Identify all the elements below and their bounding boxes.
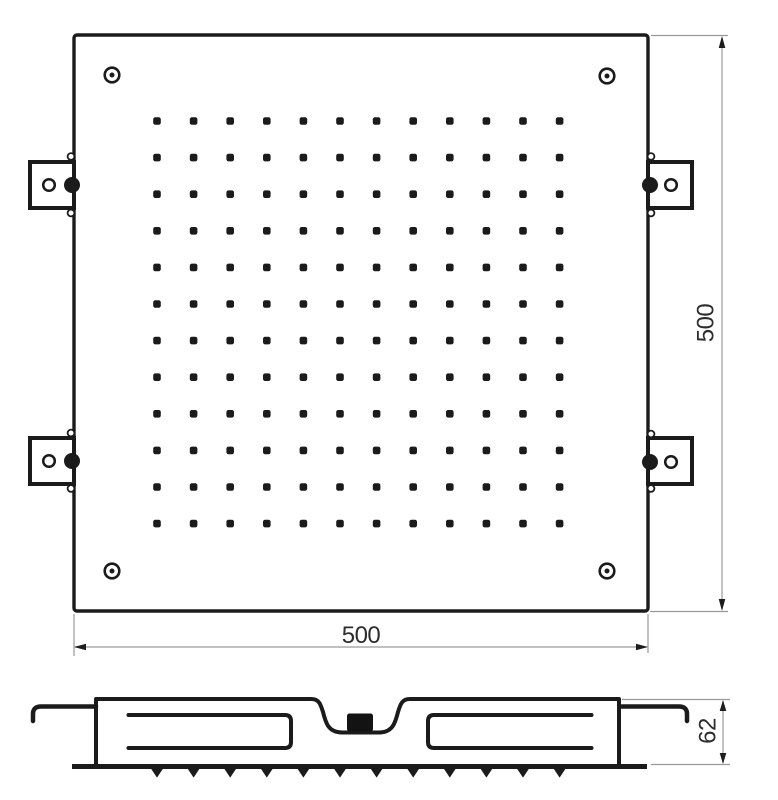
nozzle-dot — [556, 337, 564, 345]
nozzle-dot — [153, 227, 161, 235]
technical-drawing: 500 500 62 — [0, 0, 778, 800]
nozzle-dot — [153, 154, 161, 162]
nozzle-dot — [336, 264, 344, 272]
bracket-bump — [648, 153, 655, 160]
bracket-bump — [68, 485, 75, 492]
nozzle-dot — [336, 300, 344, 308]
nozzle-dot — [336, 447, 344, 455]
nozzle-dot — [263, 154, 271, 162]
nozzle-dot — [300, 300, 308, 308]
nozzle-dot — [519, 520, 527, 528]
nozzle-dot — [336, 227, 344, 235]
nozzle-dot — [336, 337, 344, 345]
nozzle-dot — [373, 154, 381, 162]
nozzle-dot — [373, 227, 381, 235]
nozzle-dot — [300, 410, 308, 418]
dimension-label-width: 500 — [342, 622, 381, 649]
nozzle-dot — [409, 373, 417, 381]
nozzle-dot — [300, 117, 308, 125]
bracket-bump — [648, 485, 655, 492]
nozzle-dot — [263, 410, 271, 418]
nozzle-dot — [519, 447, 527, 455]
nozzle-dot — [446, 227, 454, 235]
nozzle-dot — [373, 410, 381, 418]
nozzle-dot — [153, 300, 161, 308]
nozzle-dot — [336, 410, 344, 418]
nozzle-dot — [336, 154, 344, 162]
nozzle-dot — [556, 117, 564, 125]
dimension-label-height: 500 — [693, 304, 720, 343]
nozzle-dot — [226, 337, 234, 345]
nozzle-dot — [409, 190, 417, 198]
nozzle-dot — [300, 447, 308, 455]
corner-screw — [600, 564, 615, 579]
nozzle-tick — [480, 769, 492, 778]
nozzle-tick — [188, 769, 200, 778]
nozzle-dot — [190, 227, 198, 235]
nozzle-dot — [373, 373, 381, 381]
housing-body-outline — [96, 699, 619, 767]
nozzle-dot — [409, 264, 417, 272]
nozzle-dot — [409, 227, 417, 235]
nozzle-dot — [556, 447, 564, 455]
nozzle-dot — [519, 190, 527, 198]
nozzle-dot — [226, 264, 234, 272]
nozzle-dot — [556, 410, 564, 418]
nozzle-dot — [483, 410, 491, 418]
nozzle-dot — [446, 154, 454, 162]
nozzle-dot — [483, 520, 491, 528]
nozzle-dot — [446, 264, 454, 272]
nozzle-dot — [153, 264, 161, 272]
nozzle-dot — [153, 447, 161, 455]
nozzle-dot — [263, 483, 271, 491]
nozzle-dot — [300, 190, 308, 198]
mount-hook-right — [622, 707, 687, 722]
nozzle-dot — [556, 190, 564, 198]
nozzle-dot — [446, 300, 454, 308]
nozzle-dot — [190, 264, 198, 272]
nozzle-dot — [336, 373, 344, 381]
nozzle-dot — [153, 117, 161, 125]
nozzle-dot — [373, 447, 381, 455]
nozzle-dot — [446, 117, 454, 125]
nozzle-dot — [300, 483, 308, 491]
nozzle-dot — [190, 520, 198, 528]
corner-screw — [105, 564, 120, 579]
nozzle-dot — [519, 373, 527, 381]
bracket-bump — [68, 430, 75, 437]
nozzle-dot — [190, 190, 198, 198]
nozzle-dot — [483, 264, 491, 272]
nozzle-dot — [556, 483, 564, 491]
nozzle-dot — [409, 483, 417, 491]
corner-screw — [105, 68, 120, 83]
nozzle-dot — [446, 410, 454, 418]
nozzle-dot — [483, 300, 491, 308]
nozzle-dot — [373, 190, 381, 198]
nozzle-dot — [190, 447, 198, 455]
nozzle-dot — [190, 483, 198, 491]
nozzle-dot — [153, 410, 161, 418]
nozzle-dot — [409, 337, 417, 345]
nozzle-dot — [300, 227, 308, 235]
nozzle-dot — [519, 337, 527, 345]
mounting-bracket-bottom-left — [30, 430, 80, 492]
nozzle-dot — [190, 337, 198, 345]
nozzle-dot — [190, 117, 198, 125]
nozzle-dot — [226, 520, 234, 528]
dimension-depth: 62 — [622, 700, 730, 765]
nozzle-dot — [373, 264, 381, 272]
nozzle-dot — [519, 410, 527, 418]
nozzle-dot — [483, 154, 491, 162]
nozzle-dot — [336, 117, 344, 125]
nozzle-dot — [300, 520, 308, 528]
arrowhead-down-icon — [719, 599, 726, 611]
nozzle-dot — [519, 117, 527, 125]
bracket-pin — [642, 177, 658, 193]
bracket-hole — [43, 455, 55, 467]
nozzle-dot — [483, 117, 491, 125]
screw-center — [605, 74, 610, 79]
nozzle-dot — [153, 373, 161, 381]
top-view — [30, 35, 692, 611]
nozzle-dot — [190, 300, 198, 308]
screw-center — [605, 569, 610, 574]
nozzle-dot — [519, 264, 527, 272]
nozzle-dot — [300, 373, 308, 381]
dimension-height: 500 — [650, 36, 728, 612]
nozzle-dot — [519, 154, 527, 162]
bracket-bump — [648, 431, 655, 438]
mounting-bracket-bottom-right — [642, 431, 692, 492]
nozzle-tick — [297, 769, 309, 778]
nozzle-dot — [226, 447, 234, 455]
dimension-width: 500 — [74, 614, 648, 656]
arrowhead-up-icon — [719, 36, 726, 48]
nozzle-dot — [300, 264, 308, 272]
nozzle-tick — [371, 769, 383, 778]
screw-center — [110, 569, 115, 574]
nozzle-tick — [517, 769, 529, 778]
nozzle-dot — [446, 337, 454, 345]
nozzle-dot — [263, 300, 271, 308]
nozzle-dot — [373, 337, 381, 345]
corner-screw — [600, 69, 615, 84]
nozzle-dot — [263, 227, 271, 235]
nozzle-dot — [483, 447, 491, 455]
nozzle-dot — [300, 154, 308, 162]
bracket-hole — [43, 179, 55, 191]
nozzle-tick — [444, 769, 456, 778]
nozzle-tick — [151, 769, 163, 778]
bracket-pin — [64, 453, 80, 469]
nozzle-tick — [224, 769, 236, 778]
nozzle-dot — [556, 227, 564, 235]
bracket-hole — [665, 179, 677, 191]
nozzle-dot — [556, 300, 564, 308]
mounting-bracket-top-right — [642, 153, 692, 216]
mounting-bracket-top-left — [30, 153, 80, 216]
nozzle-dot — [556, 520, 564, 528]
nozzle-dot — [373, 483, 381, 491]
nozzle-dot — [409, 410, 417, 418]
nozzle-dot — [226, 117, 234, 125]
nozzle-tick — [334, 769, 346, 778]
nozzle-dot — [373, 300, 381, 308]
nozzle-dot — [263, 117, 271, 125]
nozzle-dot — [153, 337, 161, 345]
nozzle-dot — [300, 337, 308, 345]
nozzle-dot — [446, 373, 454, 381]
nozzle-dot — [263, 373, 271, 381]
nozzle-dot — [190, 373, 198, 381]
nozzle-dot — [446, 447, 454, 455]
bracket-bump — [68, 153, 75, 160]
nozzle-dot — [153, 520, 161, 528]
arrowhead-up-icon — [720, 700, 727, 711]
nozzle-dot — [263, 190, 271, 198]
nozzle-dot — [409, 117, 417, 125]
nozzle-tick — [407, 769, 419, 778]
inlet-block — [347, 714, 373, 732]
nozzle-dot — [190, 154, 198, 162]
nozzle-dot — [373, 117, 381, 125]
bracket-pin — [642, 454, 658, 470]
nozzle-dot — [226, 300, 234, 308]
nozzle-dot — [483, 483, 491, 491]
nozzle-dot — [446, 190, 454, 198]
nozzle-tick — [554, 769, 566, 778]
nozzle-dot — [263, 264, 271, 272]
bracket-bump — [648, 210, 655, 217]
nozzle-dot — [336, 483, 344, 491]
nozzle-dot — [263, 337, 271, 345]
nozzle-tick — [261, 769, 273, 778]
nozzle-dot — [263, 520, 271, 528]
nozzle-dot — [483, 337, 491, 345]
bracket-bump — [68, 210, 75, 217]
arrowhead-down-icon — [720, 753, 727, 764]
mount-hook-left — [33, 707, 96, 722]
nozzle-dot — [226, 483, 234, 491]
nozzle-dot — [556, 264, 564, 272]
nozzle-dot — [519, 227, 527, 235]
nozzle-dot — [446, 520, 454, 528]
side-section-view — [33, 699, 687, 778]
nozzle-ticks — [151, 769, 566, 778]
nozzle-dot — [409, 300, 417, 308]
nozzle-dot — [226, 410, 234, 418]
nozzle-dot — [519, 300, 527, 308]
nozzle-dot — [409, 447, 417, 455]
bracket-pin — [64, 177, 80, 193]
nozzle-dot — [190, 410, 198, 418]
nozzle-dot — [446, 483, 454, 491]
nozzle-dot — [336, 520, 344, 528]
nozzle-dot — [409, 520, 417, 528]
nozzle-dot — [483, 373, 491, 381]
nozzle-dot — [226, 154, 234, 162]
nozzle-dot — [409, 154, 417, 162]
nozzle-dot — [483, 227, 491, 235]
nozzle-dot — [226, 373, 234, 381]
nozzle-dot — [263, 447, 271, 455]
nozzle-dot — [226, 227, 234, 235]
nozzle-dot — [336, 190, 344, 198]
drawing-page: 500 500 62 — [0, 0, 778, 800]
arrowhead-right-icon — [636, 644, 648, 651]
screw-center — [110, 73, 115, 78]
nozzle-dot — [226, 190, 234, 198]
arrowhead-left-icon — [74, 644, 86, 651]
bracket-hole — [665, 456, 677, 468]
nozzle-dot — [153, 190, 161, 198]
nozzle-dot — [153, 483, 161, 491]
nozzle-dot — [556, 154, 564, 162]
nozzle-dot — [556, 373, 564, 381]
nozzle-dot — [519, 483, 527, 491]
nozzle-dot — [373, 520, 381, 528]
nozzle-dot — [483, 190, 491, 198]
dimension-label-depth: 62 — [695, 718, 722, 744]
